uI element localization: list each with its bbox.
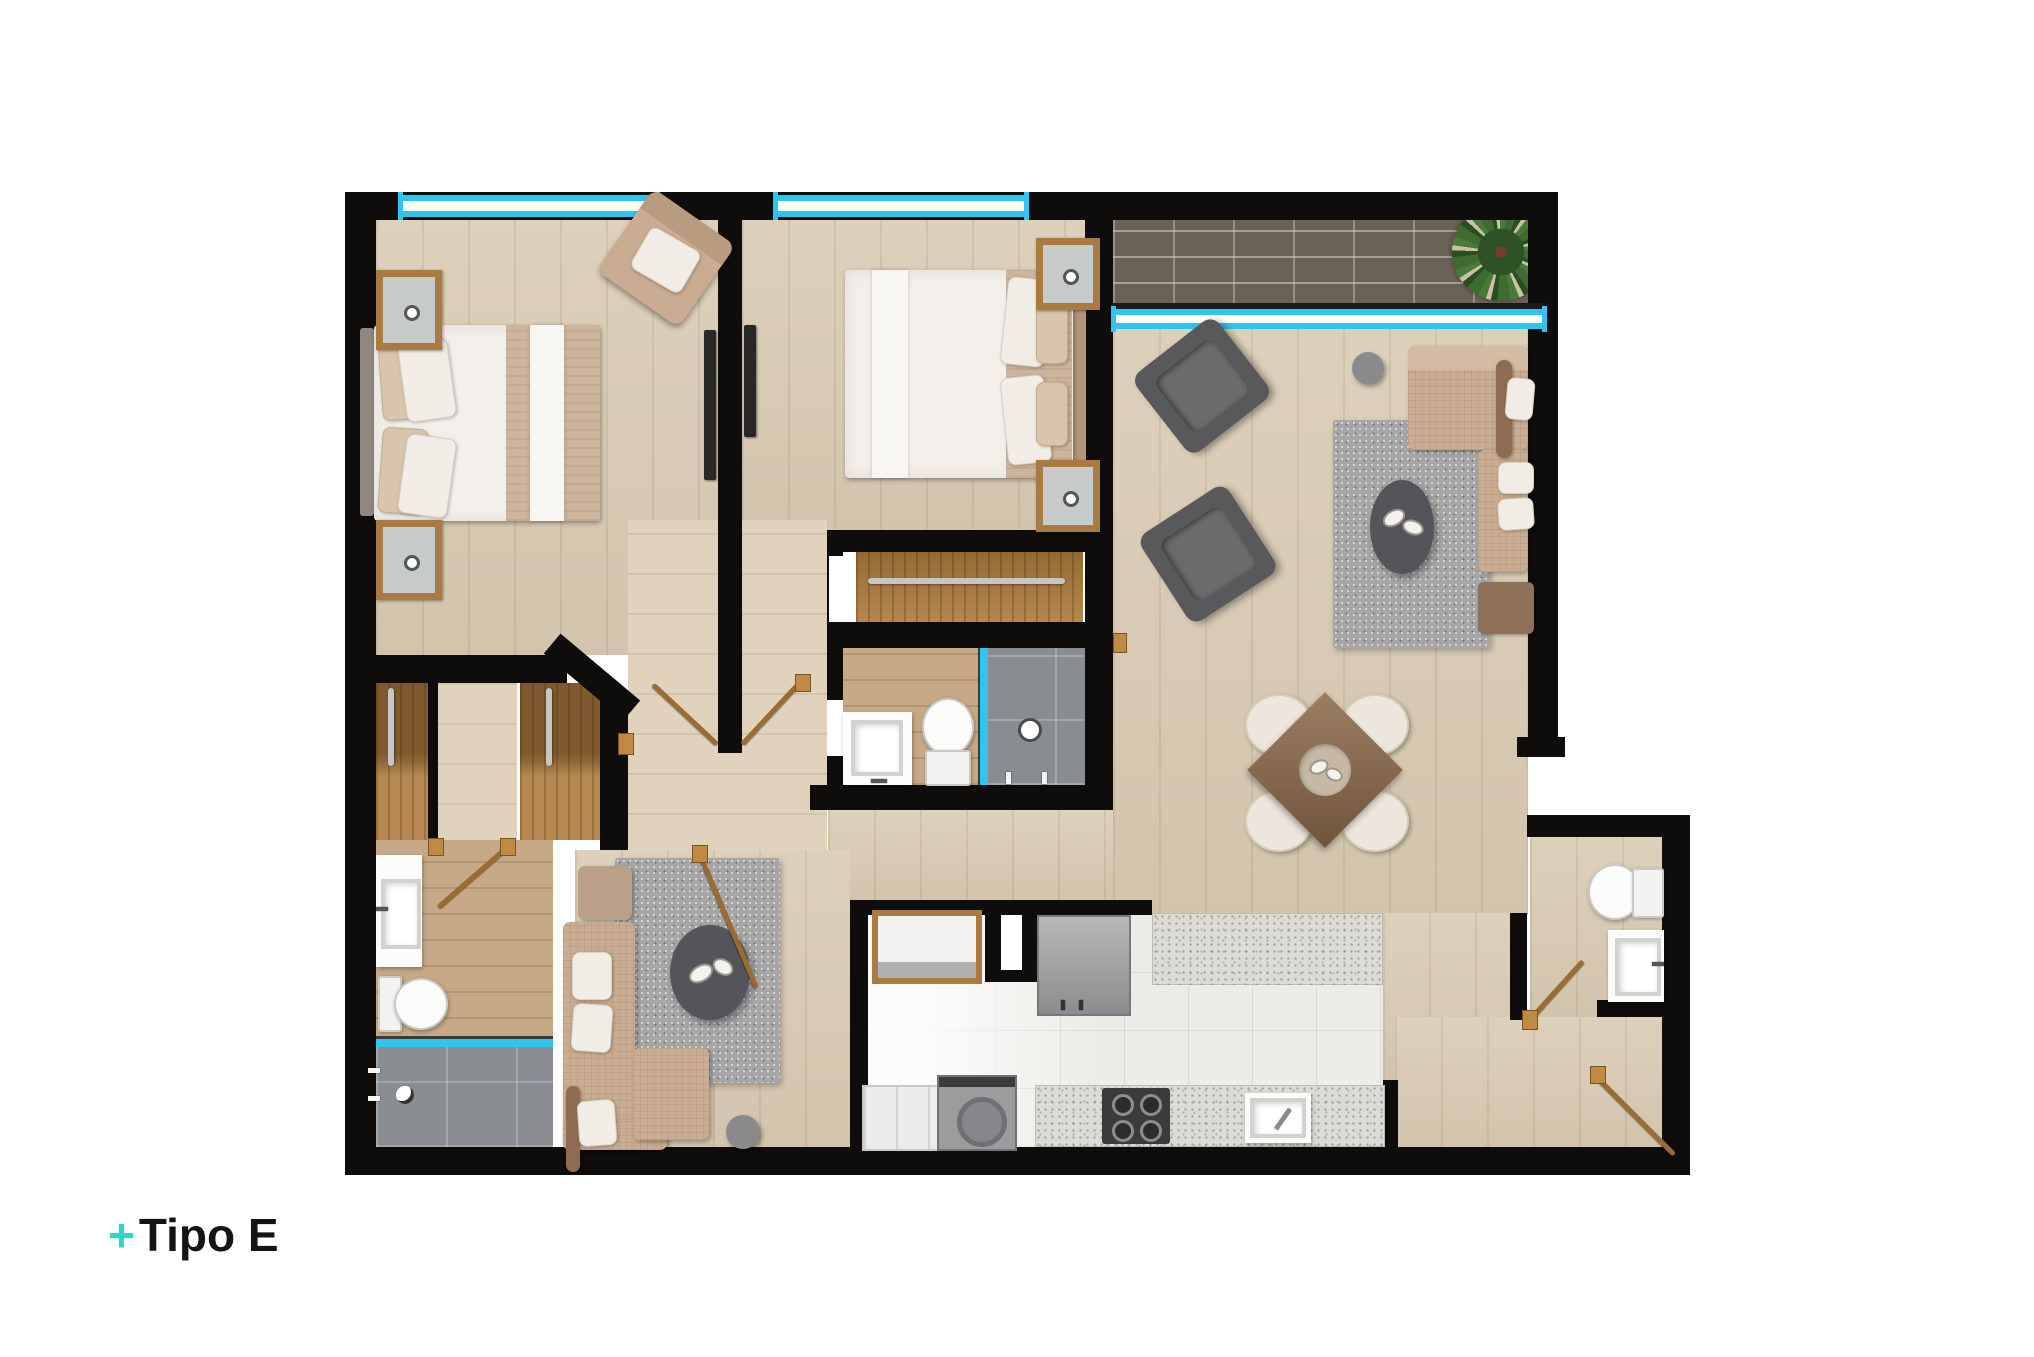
living-ottoman [1478, 582, 1534, 634]
closet-b-rod [546, 688, 552, 766]
sofa-pillow-1 [1504, 377, 1536, 421]
bathroom2-faucet [1652, 962, 1664, 966]
kitchen-pantry-pillar [985, 900, 1037, 982]
door-jamb [428, 838, 444, 856]
den-sofa-chaise [633, 1048, 709, 1140]
den-pillow-2 [570, 1003, 613, 1054]
decor-bowl [709, 955, 736, 980]
centerpiece-plate [1323, 765, 1345, 784]
closet2-door-opening [829, 556, 855, 622]
bed1-runner [530, 325, 564, 521]
bathroom1-shower-valve [1042, 772, 1047, 784]
kitchen-stove [1102, 1088, 1170, 1144]
stove-burner [1112, 1120, 1134, 1142]
wall-bathroom1-left-b [827, 756, 843, 785]
den-pillow-1 [572, 952, 612, 1000]
closet-passage-floor [437, 668, 517, 845]
bed1-nightstand-bottom [376, 520, 442, 600]
bathroom1-basin [851, 720, 903, 776]
bathroom2-vanity [1608, 930, 1664, 1002]
walkin-closet-b [520, 683, 600, 840]
bedroom2-window [775, 195, 1027, 217]
wall-right-jut [1517, 737, 1565, 757]
kitchen-sink-basin [1250, 1098, 1306, 1138]
plan-title-plus: + [108, 1209, 135, 1261]
sofa-pillow-2 [1498, 462, 1534, 494]
bed2-nightstand-bottom [1036, 460, 1100, 532]
kitchen-laundry-unit [872, 910, 982, 984]
master-shower-valve [368, 1096, 380, 1101]
wall-bedroom1-bottom [345, 655, 567, 683]
wall-bottom [345, 1147, 1690, 1175]
kitchen-washer [937, 1075, 1017, 1151]
master-shower-glass [376, 1036, 553, 1047]
master-toilet-bowl [394, 978, 448, 1030]
bathroom1-toilet-tank [925, 750, 971, 786]
walkin-closet-a [376, 683, 428, 840]
wall-bathroom1-left-a [827, 648, 843, 700]
wall-bathroom2-right [1662, 815, 1690, 1175]
pantry-slot [1001, 915, 1022, 970]
living-coffee-table [1370, 480, 1434, 574]
bed2-pillow-tan-2 [1036, 382, 1068, 446]
bedroom1-window [400, 195, 658, 217]
door-jamb [500, 838, 516, 856]
armchair-cushion [1158, 504, 1258, 604]
bathroom1-toilet-bowl [922, 698, 974, 756]
closet-a-rod [388, 688, 394, 766]
stove-burner [1112, 1094, 1134, 1116]
kitchen-counter-bottom [1035, 1085, 1385, 1147]
wall-bed1-bed2-divider [718, 220, 742, 753]
balcony-sliding-door [1113, 309, 1545, 329]
bed2-runner [872, 270, 908, 478]
open-area-floor [828, 810, 1113, 902]
stove-burner [1140, 1120, 1162, 1142]
den-armchair-square [578, 866, 632, 920]
bathroom1-vanity [843, 712, 912, 785]
kitchen-sink [1245, 1093, 1311, 1143]
door-jamb [1590, 1066, 1606, 1084]
master-shower-drain [396, 1086, 414, 1104]
bathroom1-shower-floor [985, 648, 1085, 785]
wall-bathroom1-top [827, 622, 1085, 648]
bathroom1-shower-glass [978, 648, 988, 785]
wall-bathroom1-bottom [810, 785, 1113, 810]
kitchen-fridge [1037, 915, 1131, 1016]
kitchen-counter-top [1152, 913, 1383, 985]
stove-burner [1140, 1094, 1162, 1116]
wall-bathroom2-bottom [1597, 1000, 1662, 1017]
bedroom2-closet [856, 552, 1083, 622]
master-faucet [376, 907, 388, 911]
door-jamb [1522, 1010, 1538, 1030]
kitchen-cabinet [862, 1085, 939, 1151]
armchair-cushion [1153, 337, 1252, 435]
bedroom1-tv [704, 330, 716, 480]
floorplan-page: +Tipo E [0, 0, 2034, 1357]
bathroom1-shower-drain [1018, 718, 1042, 742]
den-pillow-3 [576, 1099, 617, 1148]
sofa-pillow-3 [1497, 497, 1535, 531]
master-shower-valve [368, 1068, 380, 1073]
door-jamb [1113, 633, 1127, 653]
bedroom2-closet-rod [868, 578, 1065, 584]
plan-title-text: Tipo E [139, 1209, 279, 1261]
decor-bowl [1400, 517, 1426, 539]
wall-closeta-divider [428, 683, 438, 843]
wall-closetb-right [600, 697, 628, 850]
wall-vestibule-stub [1383, 1080, 1398, 1150]
master-basin [381, 879, 421, 949]
fridge-handle [1061, 1000, 1065, 1010]
wall-closet2-top [827, 530, 1085, 552]
living-side-table [1352, 352, 1384, 384]
floorplan-tipo-e [0, 0, 2034, 1357]
fridge-handle [1079, 1000, 1083, 1010]
dining-centerpiece [1299, 744, 1351, 796]
bed2-nightstand-top [1036, 238, 1100, 310]
door-jamb [618, 733, 634, 755]
bedroom2-tv [744, 325, 756, 437]
bathroom2-toilet-tank [1632, 868, 1664, 918]
vestibule-floor [1395, 1017, 1662, 1147]
den-stool [726, 1115, 760, 1149]
door-jamb [692, 845, 708, 863]
bed1-nightstand-top [376, 270, 442, 350]
bathroom1-shower-valve [1006, 772, 1011, 784]
wall-kitchen-right [1510, 913, 1527, 1020]
bed1-headboard [360, 328, 374, 516]
door-jamb [795, 674, 811, 692]
plan-title: +Tipo E [108, 1208, 279, 1262]
master-vanity [376, 855, 422, 967]
bathroom2-basin [1615, 938, 1661, 996]
bathroom1-faucet [871, 779, 887, 783]
